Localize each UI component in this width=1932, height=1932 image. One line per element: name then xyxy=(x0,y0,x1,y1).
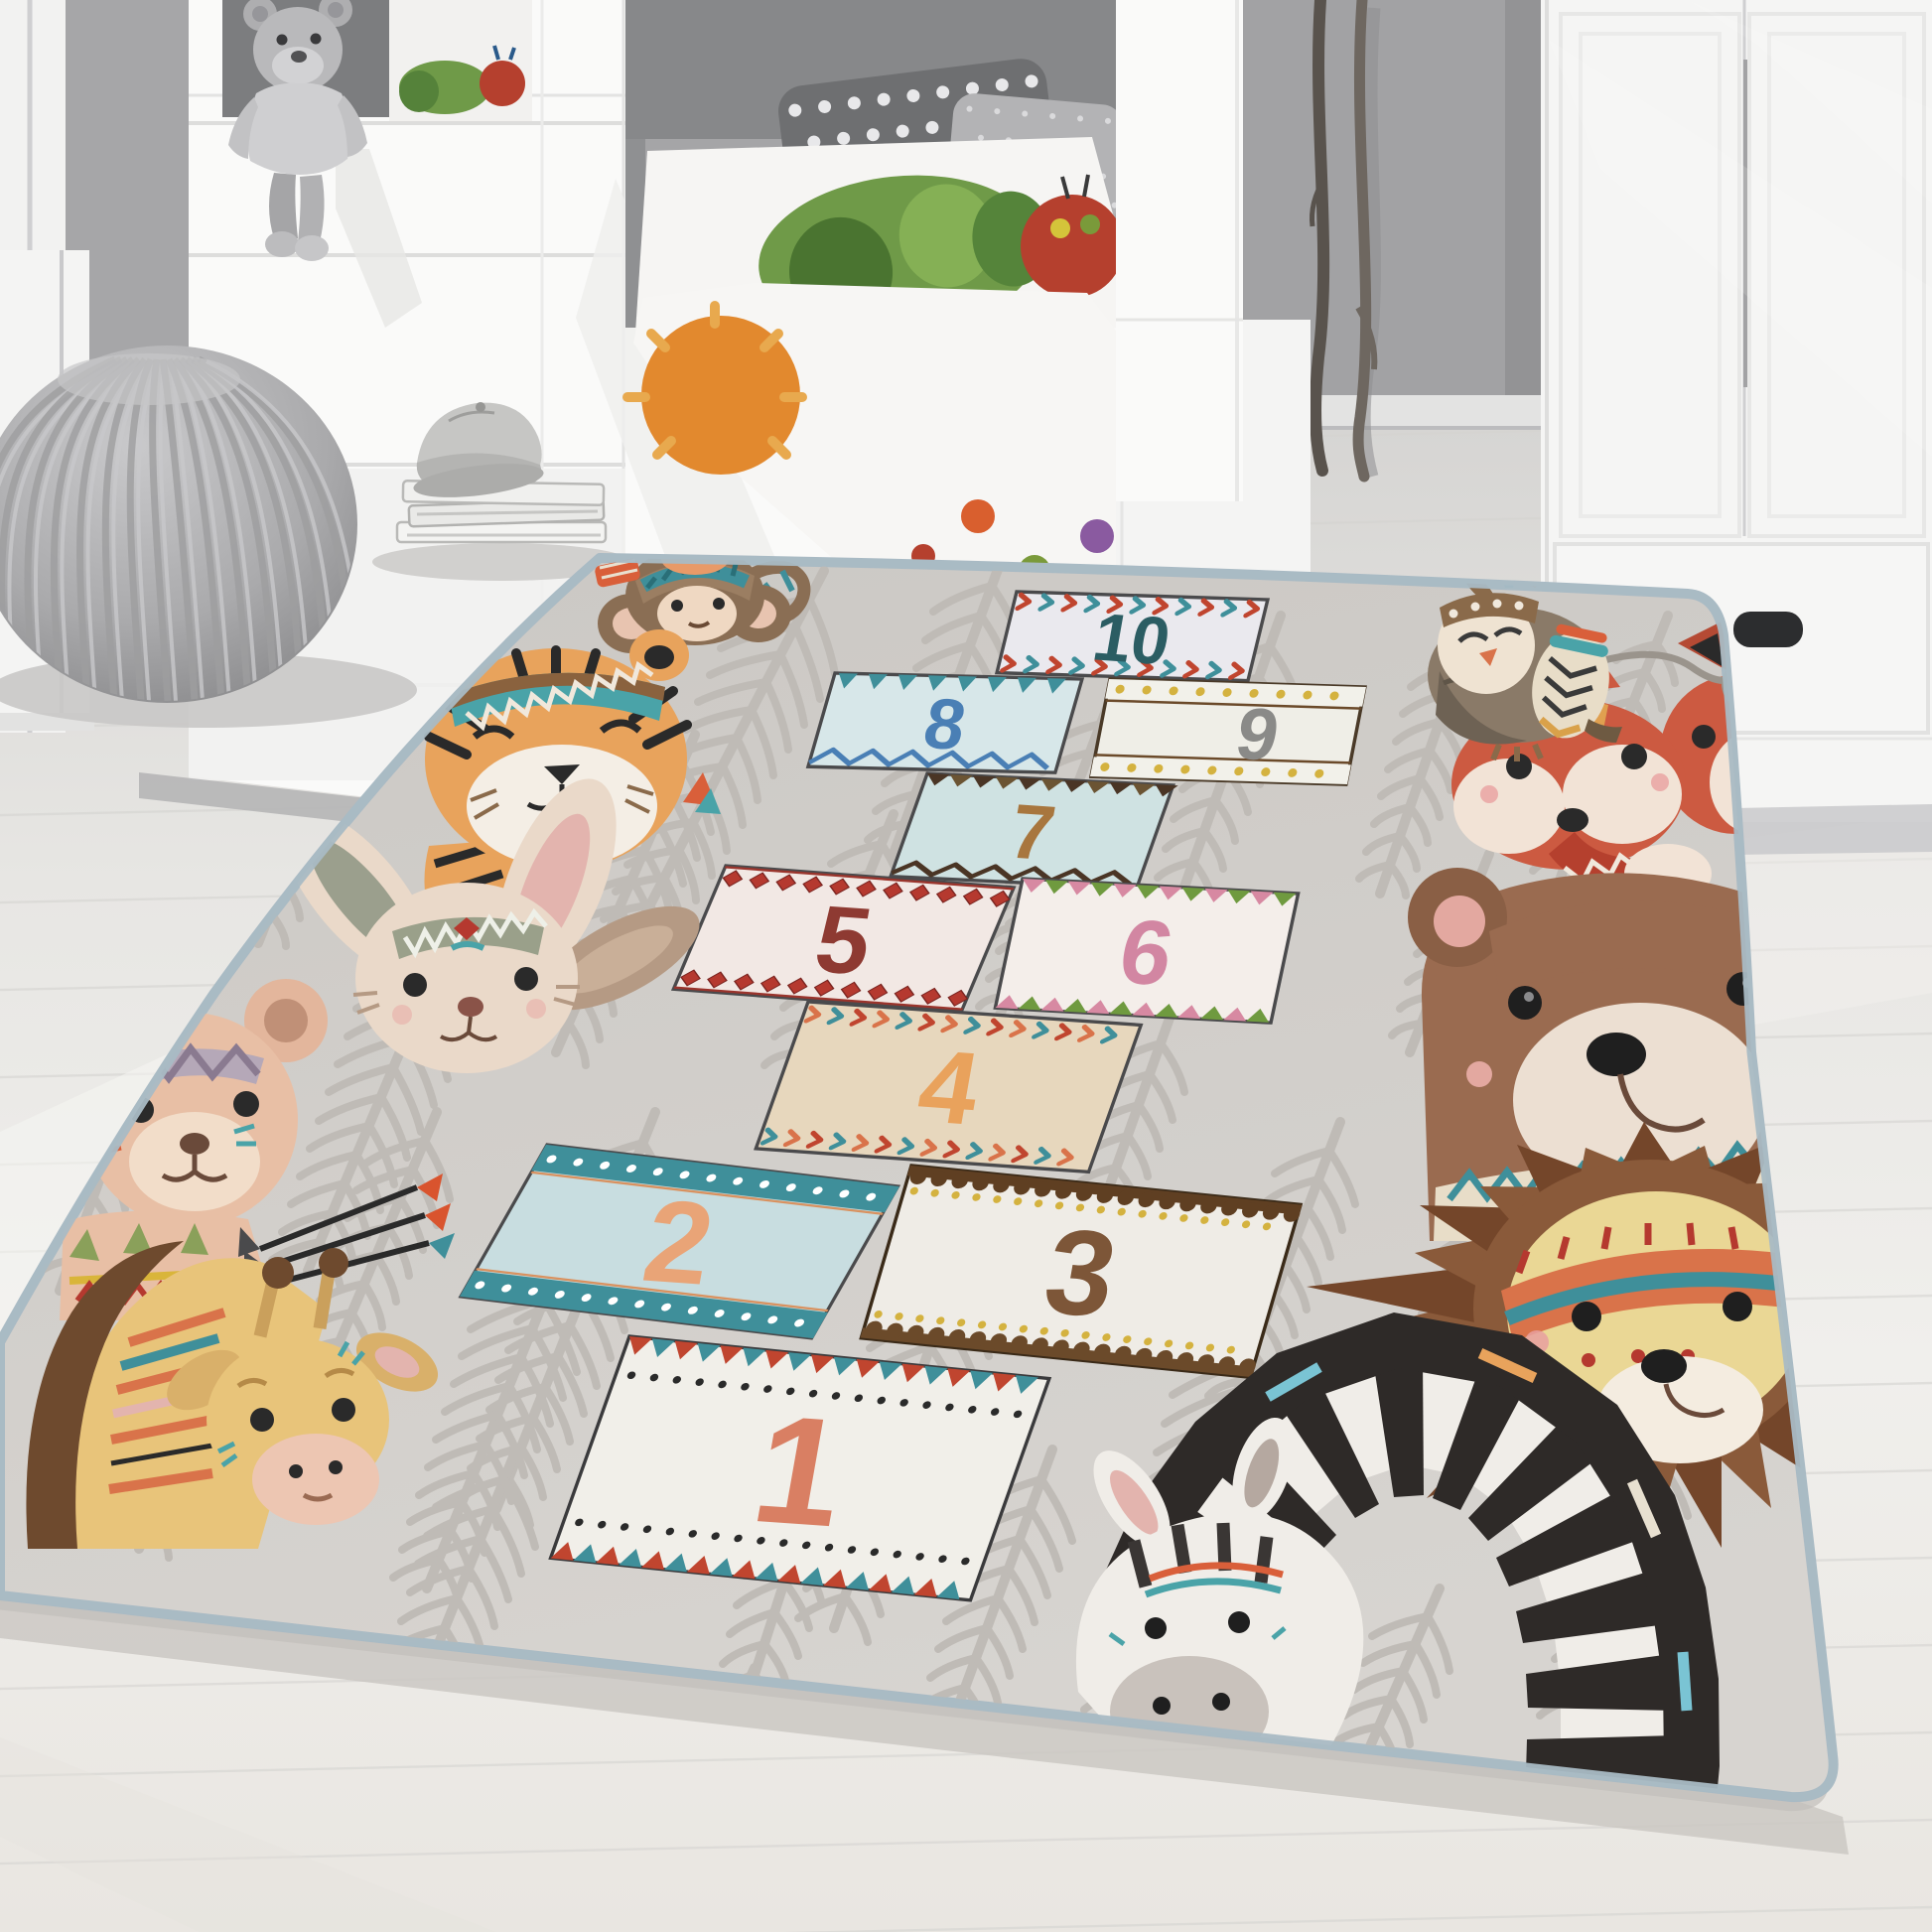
svg-text:10: 10 xyxy=(1087,600,1175,679)
